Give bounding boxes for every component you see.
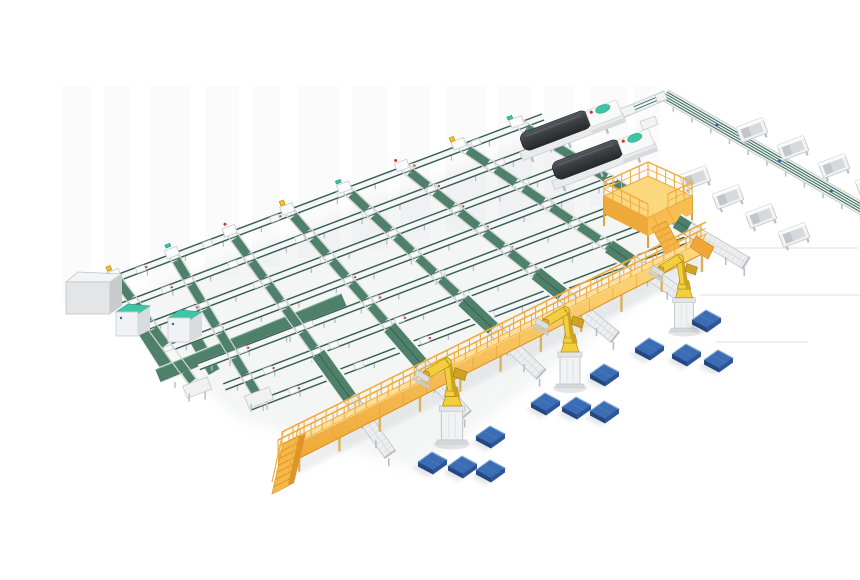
- pallet: [667, 344, 701, 369]
- chute-bin: [818, 154, 851, 183]
- pallet: [585, 364, 619, 389]
- control-cabinet: [66, 272, 122, 314]
- factory-render: [0, 0, 860, 580]
- pallet: [526, 393, 560, 418]
- chute-bin: [778, 223, 811, 252]
- pallet: [630, 338, 664, 363]
- teal-top-cabinet: [116, 304, 150, 336]
- factory-scene-stage: [0, 0, 860, 580]
- chute-bin: [855, 172, 860, 201]
- chute-bin: [777, 136, 810, 165]
- teal-top-cabinet: [168, 310, 202, 342]
- pallet: [471, 426, 505, 451]
- chute-bin: [745, 204, 778, 233]
- chute-bin: [712, 185, 745, 214]
- pallet: [699, 350, 733, 375]
